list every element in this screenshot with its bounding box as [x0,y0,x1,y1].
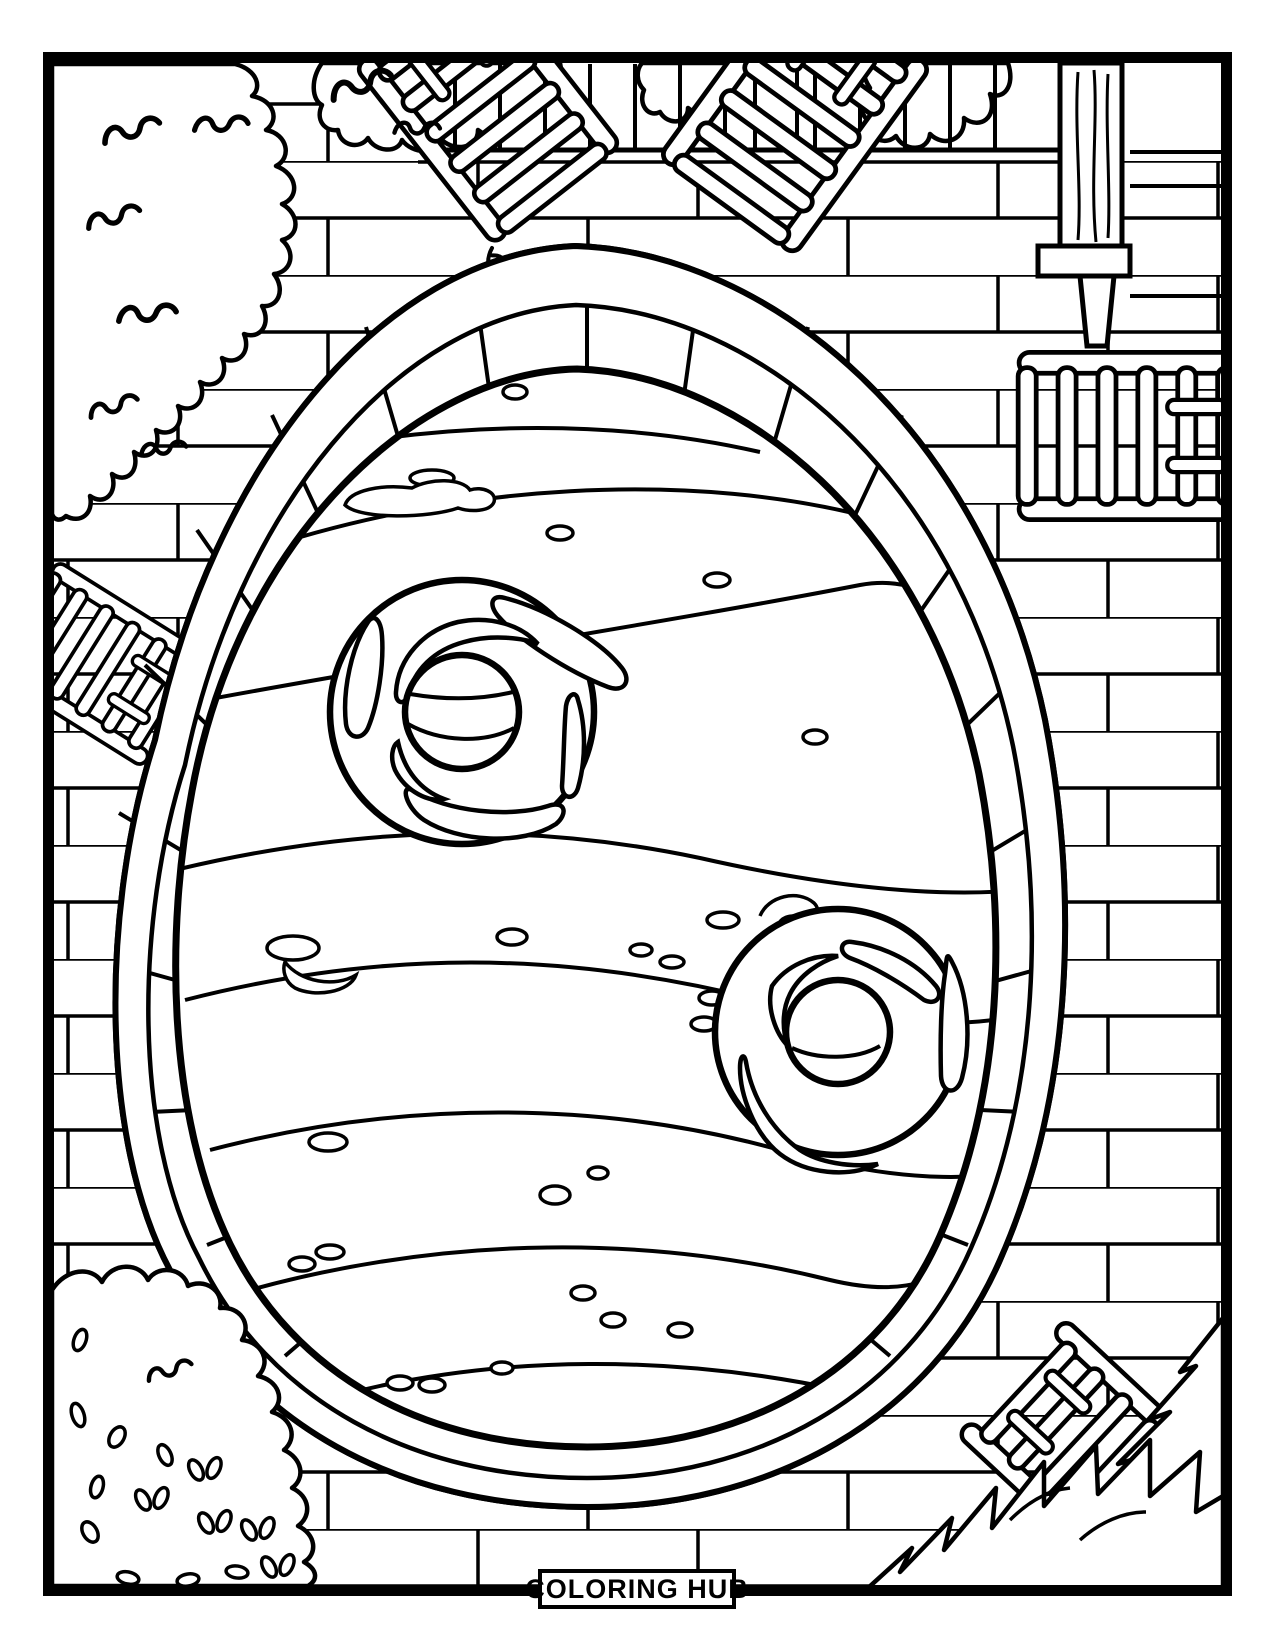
coloring-page-illustration: COLORING HUB [0,0,1275,1650]
scene [0,0,1251,1588]
coloring-page: COLORING HUB [0,0,1275,1650]
footer-badge: COLORING HUB [525,1571,749,1607]
brand-label: COLORING HUB [525,1574,749,1604]
